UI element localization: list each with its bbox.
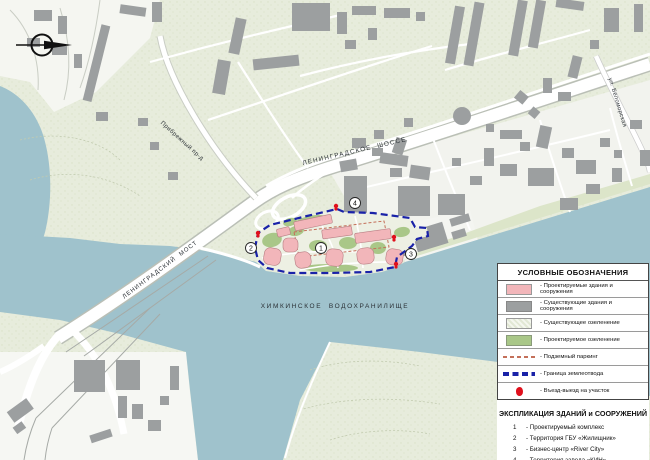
legend-label: - Существующее озеленение [540,320,622,326]
callout-1-number: 1 [319,246,323,253]
reservoir-label: ХИМКИНСКОЕ ВОДОХРАНИЛИЩЕ [261,303,410,310]
underground-parking-swatch [503,356,535,359]
callout-4: 4 [350,198,361,209]
projected-greenery-swatch [506,335,532,346]
callout-3: 3 [406,249,417,260]
legend-row-projected-buildings: - Проектируемые здания и сооружения [498,281,648,298]
explication-label: - Территория ГБУ «Жилищник» [526,435,616,442]
explication-number: 3 [513,446,526,453]
explication-label: - Бизнес-центр «River City» [526,446,604,453]
explication-number: 2 [513,435,526,442]
existing-buildings-swatch [506,301,532,312]
explication-title: ЭКСПЛИКАЦИЯ ЗДАНИЙ и СООРУЖЕНИЙ [497,409,649,418]
masterplan-map: 1 2 3 4 ХИМКИНСКОЕ ВОДОХРАНИЛИЩЕ ЛЕНИНГР… [0,0,650,460]
legend-row-site-boundary: - Граница землеотвода [498,366,648,383]
callout-2: 2 [246,243,257,254]
legend-label: - Проектируемое озеленение [540,337,622,343]
entry-exit-swatch [516,387,523,396]
explication: ЭКСПЛИКАЦИЯ ЗДАНИЙ и СООРУЖЕНИЙ 1 - Прое… [497,409,649,460]
explication-item-1: 1 - Проектируемый комплекс [513,424,649,431]
callout-3-number: 3 [409,252,413,259]
site-boundary-swatch [503,372,535,376]
explication-item-2: 2 - Территория ГБУ «Жилищник» [513,435,649,442]
explication-number: 1 [513,424,526,431]
explication-label: - Проектируемый комплекс [526,424,604,431]
legend-label: - Подземный паркинг [540,354,600,360]
legend-row-existing-buildings: - Существующие здания и сооружения [498,298,648,315]
legend-row-entry-exit: - Въезд-выезд на участок [498,383,648,399]
legend-title: УСЛОВНЫЕ ОБОЗНАЧЕНИЯ [498,264,648,281]
legend-row-underground-parking: - Подземный паркинг [498,349,648,366]
legend-row-existing-greenery: - Существующее озеленение [498,315,648,332]
projected-buildings-swatch [506,284,532,295]
callout-1: 1 [316,243,327,254]
legend-label: - Граница землеотвода [540,371,605,377]
callout-4-number: 4 [353,201,357,208]
legend-panel: УСЛОВНЫЕ ОБОЗНАЧЕНИЯ - Проектируемые зда… [497,263,649,460]
callout-2-number: 2 [249,246,253,253]
explication-item-3: 3 - Бизнес-центр «River City» [513,446,649,453]
legend-label: - Проектируемые здания и сооружения [540,283,648,295]
legend-row-projected-greenery: - Проектируемое озеленение [498,332,648,349]
legend-label: - Существующие здания и сооружения [540,300,648,312]
existing-greenery-swatch [506,318,532,329]
legend-label: - Въезд-выезд на участок [540,388,611,394]
legend-box: УСЛОВНЫЕ ОБОЗНАЧЕНИЯ - Проектируемые зда… [497,263,649,400]
